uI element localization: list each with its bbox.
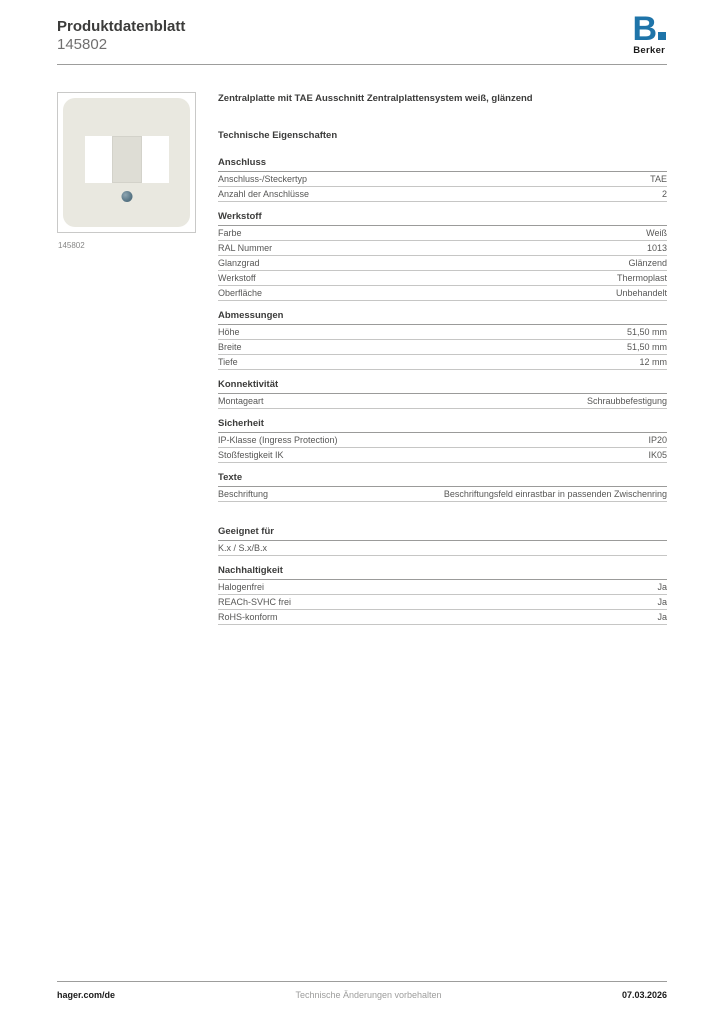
spec-value: 2 [662, 189, 667, 199]
section-title: Anschluss [218, 157, 667, 172]
spec-section: AbmessungenHöhe51,50 mmBreite51,50 mmTie… [218, 310, 667, 370]
spec-label: Anzahl der Anschlüsse [218, 189, 309, 199]
datasheet-page: Produktdatenblatt 145802 B Berker 145802 [0, 0, 724, 1024]
spec-row: FarbeWeiß [218, 226, 667, 241]
spec-label: REACh-SVHC frei [218, 597, 291, 607]
section-title: Nachhaltigkeit [218, 565, 667, 580]
page-header: Produktdatenblatt 145802 B Berker [57, 18, 667, 56]
spec-section: Geeignet fürK.x / S.x/B.x [218, 526, 667, 556]
spec-label: Anschluss-/Steckertyp [218, 174, 307, 184]
spec-label: Oberfläche [218, 288, 262, 298]
spec-label: Montageart [218, 396, 264, 406]
spec-label: Werkstoff [218, 273, 256, 283]
hager-website-link[interactable]: hager.com/de [57, 990, 115, 1000]
footer-date: 07.03.2026 [622, 990, 667, 1000]
spec-section: NachhaltigkeitHalogenfreiJaREACh-SVHC fr… [218, 565, 667, 625]
section-title: Konnektivität [218, 379, 667, 394]
spec-label: Glanzgrad [218, 258, 260, 268]
specs-heading: Technische Eigenschaften [218, 130, 667, 141]
cover-plate-graphic [63, 98, 190, 227]
berker-logo: B Berker [632, 14, 667, 56]
section-title: Sicherheit [218, 418, 667, 433]
section-title: Texte [218, 472, 667, 487]
spec-value: IP20 [648, 435, 667, 445]
spec-value: Thermoplast [617, 273, 667, 283]
spec-label: K.x / S.x/B.x [218, 543, 267, 553]
spec-label: Halogenfrei [218, 582, 264, 592]
product-image [57, 92, 196, 233]
header-text-block: Produktdatenblatt 145802 [57, 18, 185, 54]
spec-section: TexteBeschriftungBeschriftungsfeld einra… [218, 472, 667, 502]
logo-letter: B [632, 10, 656, 48]
spec-section: KonnektivitätMontageartSchraubbefestigun… [218, 379, 667, 409]
spec-row: IP-Klasse (Ingress Protection)IP20 [218, 433, 667, 448]
spec-value: Ja [657, 612, 667, 622]
page-footer: hager.com/de Technische Änderungen vorbe… [57, 981, 667, 1000]
spec-label: Höhe [218, 327, 240, 337]
spec-value: 12 mm [639, 357, 667, 367]
spec-row: K.x / S.x/B.x [218, 541, 667, 556]
tae-cutout-right [142, 136, 169, 183]
spec-value: Weiß [646, 228, 667, 238]
spec-value: IK05 [648, 450, 667, 460]
berker-logo-mark: B [632, 14, 666, 44]
header-divider [57, 64, 667, 65]
spec-label: Tiefe [218, 357, 238, 367]
spec-value: Unbehandelt [616, 288, 667, 298]
product-number: 145802 [57, 36, 185, 54]
spec-row: Anschluss-/SteckertypTAE [218, 172, 667, 187]
spec-row: MontageartSchraubbefestigung [218, 394, 667, 409]
spec-row: Tiefe12 mm [218, 355, 667, 370]
spec-value: 51,50 mm [627, 342, 667, 352]
footer-disclaimer: Technische Änderungen vorbehalten [295, 990, 441, 1000]
screw-graphic [121, 191, 132, 202]
spec-row: HalogenfreiJa [218, 580, 667, 595]
spec-row: Höhe51,50 mm [218, 325, 667, 340]
spec-row: BeschriftungBeschriftungsfeld einrastbar… [218, 487, 667, 502]
spec-label: Stoßfestigkeit IK [218, 450, 284, 460]
spec-row: REACh-SVHC freiJa [218, 595, 667, 610]
spec-value: Schraubbefestigung [587, 396, 667, 406]
section-title: Werkstoff [218, 211, 667, 226]
spec-row: Stoßfestigkeit IKIK05 [218, 448, 667, 463]
product-name: Zentralplatte mit TAE Ausschnitt Zentral… [218, 93, 667, 104]
tae-cutout-center [112, 136, 142, 183]
document-title: Produktdatenblatt [57, 18, 185, 36]
tae-cutout-graphic [85, 136, 169, 183]
spec-label: Beschriftung [218, 489, 268, 499]
spec-label: RAL Nummer [218, 243, 272, 253]
spec-section: SicherheitIP-Klasse (Ingress Protection)… [218, 418, 667, 463]
spec-value: Beschriftungsfeld einrastbar in passende… [444, 489, 667, 499]
spec-label: IP-Klasse (Ingress Protection) [218, 435, 338, 445]
section-title: Geeignet für [218, 526, 667, 541]
spec-section: AnschlussAnschluss-/SteckertypTAEAnzahl … [218, 157, 667, 202]
spec-value: TAE [650, 174, 667, 184]
spec-label: RoHS-konform [218, 612, 278, 622]
spec-row: WerkstoffThermoplast [218, 271, 667, 286]
spec-row: RAL Nummer1013 [218, 241, 667, 256]
spec-value: 51,50 mm [627, 327, 667, 337]
image-caption: 145802 [57, 241, 197, 250]
spec-value: Ja [657, 597, 667, 607]
product-image-column: 145802 [57, 92, 197, 625]
spec-sections: AnschlussAnschluss-/SteckertypTAEAnzahl … [218, 157, 667, 625]
spec-row: GlanzgradGlänzend [218, 256, 667, 271]
spec-row: Anzahl der Anschlüsse2 [218, 187, 667, 202]
spec-value: 1013 [647, 243, 667, 253]
main-content: 145802 Zentralplatte mit TAE Ausschnitt … [57, 92, 667, 625]
specs-column: Zentralplatte mit TAE Ausschnitt Zentral… [218, 92, 667, 625]
spec-label: Farbe [218, 228, 242, 238]
section-title: Abmessungen [218, 310, 667, 325]
spec-row: Breite51,50 mm [218, 340, 667, 355]
spec-section: WerkstoffFarbeWeißRAL Nummer1013Glanzgra… [218, 211, 667, 301]
spec-value: Ja [657, 582, 667, 592]
logo-square-dot-icon [658, 32, 666, 40]
spec-row: OberflächeUnbehandelt [218, 286, 667, 301]
tae-cutout-left [85, 136, 112, 183]
spec-label: Breite [218, 342, 242, 352]
spec-value: Glänzend [628, 258, 667, 268]
berker-brand-name: Berker [632, 45, 666, 56]
spec-row: RoHS-konformJa [218, 610, 667, 625]
